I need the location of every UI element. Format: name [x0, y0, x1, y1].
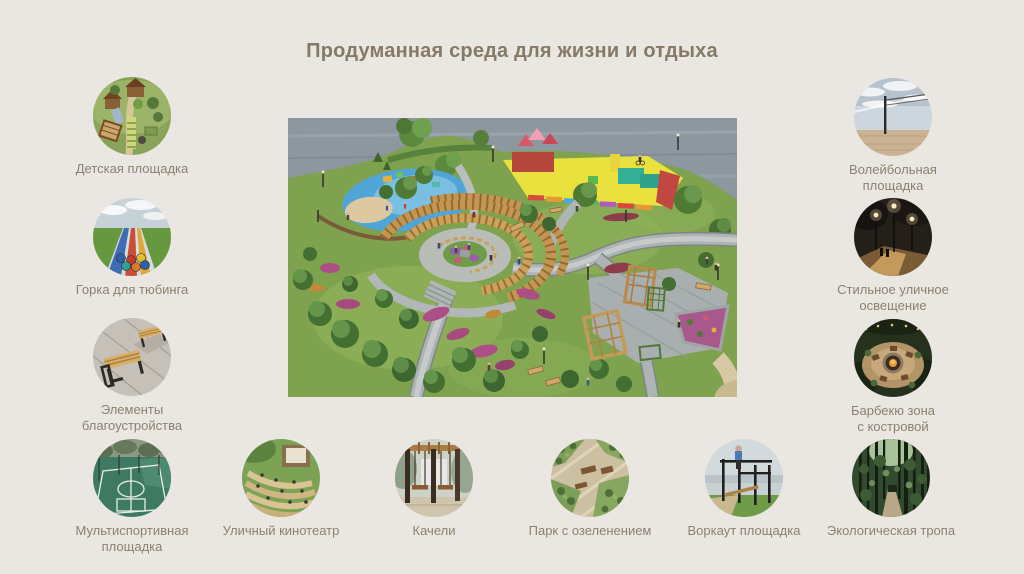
slide-title: Продуманная среда для жизни и отдыха	[0, 40, 1024, 63]
open-air-cinema-photo-icon	[242, 439, 320, 517]
tubing-hill-thumbnail	[93, 198, 171, 276]
feature-label: Волейбольная площадка	[838, 162, 948, 194]
tubing-hill-photo-icon	[93, 198, 171, 276]
park-aerial-render-illustration	[288, 118, 737, 397]
feature-label: Элементы благоустройства	[72, 402, 192, 434]
eco-trail-thumbnail	[852, 439, 930, 517]
volleyball-court-thumbnail	[854, 78, 932, 156]
feature-item-benches: Элементы благоустройства	[72, 318, 192, 434]
bbq-fire-pit-photo-icon	[854, 319, 932, 397]
feature-item-workout: Воркаут площадка	[664, 439, 824, 539]
multisport-court-photo-icon	[93, 439, 171, 517]
feature-item-lighting: Стильное уличное освещение	[823, 198, 963, 314]
street-lighting-thumbnail	[854, 198, 932, 276]
open-air-cinema-thumbnail	[242, 439, 320, 517]
eco-trail-photo-icon	[852, 439, 930, 517]
street-lighting-photo-icon	[854, 198, 932, 276]
landscaped-park-photo-icon	[551, 439, 629, 517]
feature-label: Барбекю зона с костровой	[847, 403, 939, 435]
volleyball-court-photo-icon	[854, 78, 932, 156]
playground-thumbnail	[93, 77, 171, 155]
feature-label: Качели	[413, 523, 456, 539]
feature-label: Горка для тюбинга	[76, 282, 189, 298]
workout-ground-thumbnail	[705, 439, 783, 517]
feature-item-swings: Качели	[354, 439, 514, 539]
feature-label: Мультиспортивная площадка	[67, 523, 197, 555]
feature-label: Парк с озеленением	[529, 523, 652, 539]
workout-ground-photo-icon	[705, 439, 783, 517]
feature-label: Экологическая тропа	[827, 523, 955, 539]
feature-item-bbq: Барбекю зона с костровой	[847, 319, 939, 435]
multisport-court-thumbnail	[93, 439, 171, 517]
feature-item-playground: Детская площадка	[52, 77, 212, 177]
feature-item-eco-trail: Экологическая тропа	[806, 439, 976, 539]
swings-photo-icon	[395, 439, 473, 517]
feature-label: Стильное уличное освещение	[823, 282, 963, 314]
feature-label: Уличный кинотеатр	[223, 523, 340, 539]
feature-label: Детская площадка	[76, 161, 188, 177]
feature-item-volleyball: Волейбольная площадка	[838, 78, 948, 194]
feature-item-cinema: Уличный кинотеатр	[201, 439, 361, 539]
swings-thumbnail	[395, 439, 473, 517]
feature-item-tubing: Горка для тюбинга	[52, 198, 212, 298]
feature-item-multisport: Мультиспортивная площадка	[67, 439, 197, 555]
benches-thumbnail	[93, 318, 171, 396]
feature-label: Воркаут площадка	[688, 523, 801, 539]
benches-photo-icon	[93, 318, 171, 396]
feature-item-park-greenery: Парк с озеленением	[505, 439, 675, 539]
landscaped-park-thumbnail	[551, 439, 629, 517]
park-render-image	[288, 118, 737, 397]
playground-photo-icon	[93, 77, 171, 155]
bbq-fire-pit-thumbnail	[854, 319, 932, 397]
presentation-slide: Продуманная среда для жизни и отдыха	[0, 0, 1024, 574]
